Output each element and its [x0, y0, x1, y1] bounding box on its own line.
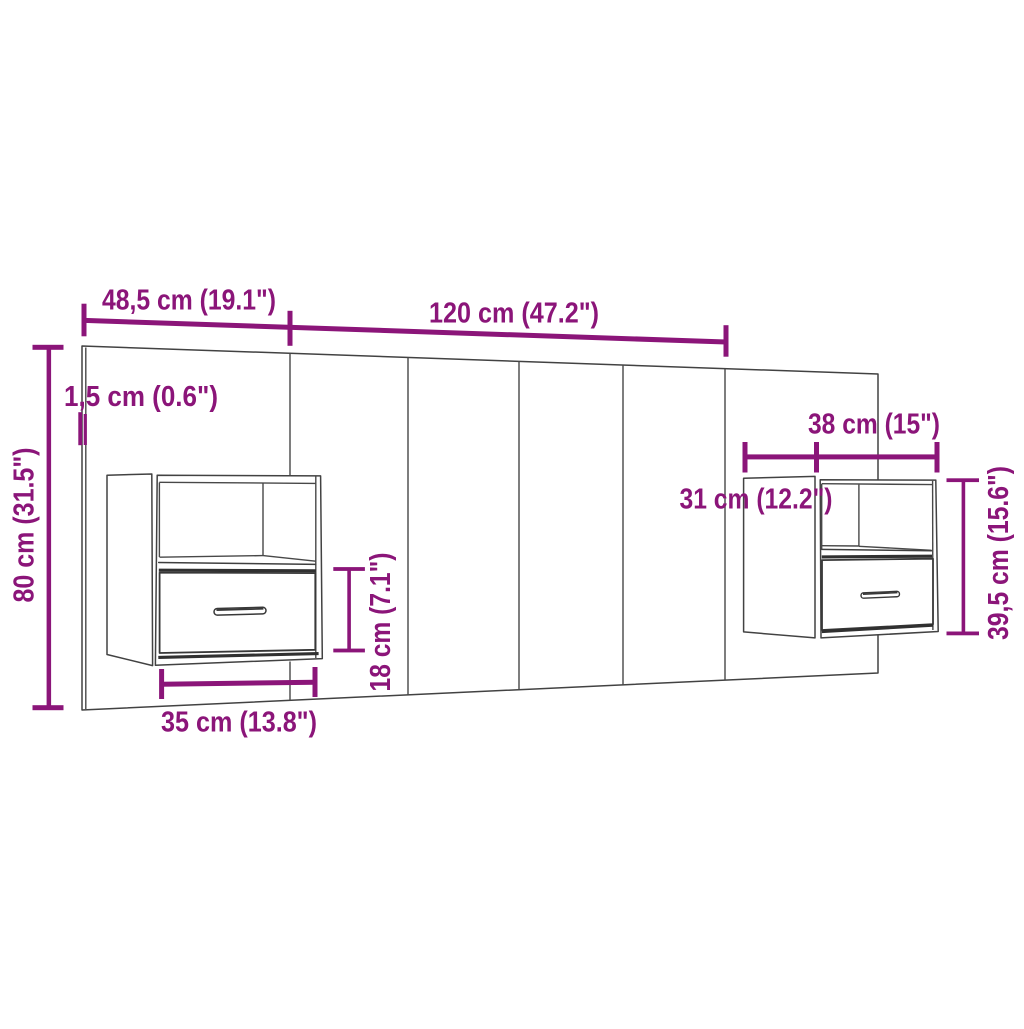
svg-text:120 cm (47.2"): 120 cm (47.2")	[429, 298, 599, 330]
svg-text:38 cm (15"): 38 cm (15")	[808, 409, 940, 441]
svg-text:31 cm (12.2"): 31 cm (12.2")	[680, 484, 833, 516]
svg-text:80 cm (31.5"): 80 cm (31.5")	[9, 448, 41, 603]
svg-text:18 cm (7.1"): 18 cm (7.1")	[365, 553, 397, 692]
svg-text:35 cm (13.8"): 35 cm (13.8")	[161, 707, 317, 739]
svg-text:39,5 cm (15.6"): 39,5 cm (15.6")	[983, 466, 1015, 640]
svg-text:1,5 cm (0.6"): 1,5 cm (0.6")	[64, 381, 218, 413]
svg-text:48,5 cm (19.1"): 48,5 cm (19.1")	[102, 285, 276, 317]
